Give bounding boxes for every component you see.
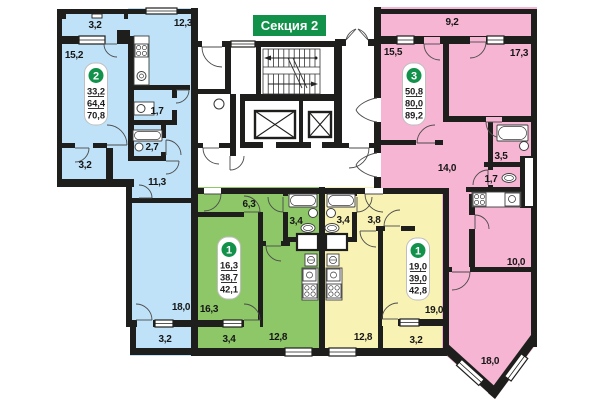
svg-text:12,8: 12,8 (354, 332, 373, 343)
svg-text:3,4: 3,4 (222, 334, 236, 345)
svg-text:70,8: 70,8 (87, 111, 105, 121)
svg-text:3,5: 3,5 (494, 151, 508, 162)
svg-text:6,3: 6,3 (242, 199, 256, 210)
svg-text:33,2: 33,2 (87, 87, 105, 97)
svg-text:3,2: 3,2 (158, 334, 172, 345)
svg-text:17,3: 17,3 (510, 48, 529, 59)
svg-text:42,8: 42,8 (409, 286, 427, 296)
svg-text:80,0: 80,0 (405, 99, 423, 109)
svg-text:64,4: 64,4 (87, 99, 106, 109)
svg-text:1,7: 1,7 (484, 174, 498, 185)
svg-text:50,8: 50,8 (405, 87, 423, 97)
svg-text:9,2: 9,2 (445, 17, 459, 28)
svg-text:3,2: 3,2 (78, 160, 92, 171)
svg-text:2,7: 2,7 (145, 142, 159, 153)
svg-text:19,0: 19,0 (409, 262, 427, 272)
svg-text:1: 1 (226, 245, 232, 257)
svg-text:89,2: 89,2 (405, 111, 423, 121)
svg-text:1,7: 1,7 (150, 106, 164, 117)
svg-text:3,2: 3,2 (88, 20, 102, 31)
svg-text:12,3: 12,3 (174, 18, 193, 29)
svg-text:3,4: 3,4 (336, 215, 350, 226)
svg-text:19,0: 19,0 (425, 305, 444, 316)
svg-text:2: 2 (93, 71, 99, 83)
svg-text:15,2: 15,2 (65, 50, 84, 61)
svg-text:38,7: 38,7 (220, 273, 238, 283)
svg-text:Секция 2: Секция 2 (261, 18, 319, 33)
svg-text:18,0: 18,0 (172, 302, 191, 313)
svg-text:14,0: 14,0 (438, 163, 457, 174)
svg-text:16,3: 16,3 (220, 261, 238, 271)
svg-text:18,0: 18,0 (481, 356, 500, 367)
svg-text:39,0: 39,0 (409, 274, 427, 284)
svg-text:15,5: 15,5 (384, 47, 403, 58)
svg-text:3,8: 3,8 (367, 215, 381, 226)
svg-text:1: 1 (415, 246, 421, 258)
svg-text:3: 3 (411, 71, 417, 83)
svg-text:11,3: 11,3 (148, 177, 166, 188)
svg-text:16,3: 16,3 (200, 304, 219, 315)
svg-text:3,4: 3,4 (289, 216, 303, 227)
svg-text:3,2: 3,2 (409, 335, 423, 346)
svg-text:12,8: 12,8 (269, 332, 288, 343)
svg-text:42,1: 42,1 (220, 285, 238, 295)
svg-text:10,0: 10,0 (507, 257, 526, 268)
